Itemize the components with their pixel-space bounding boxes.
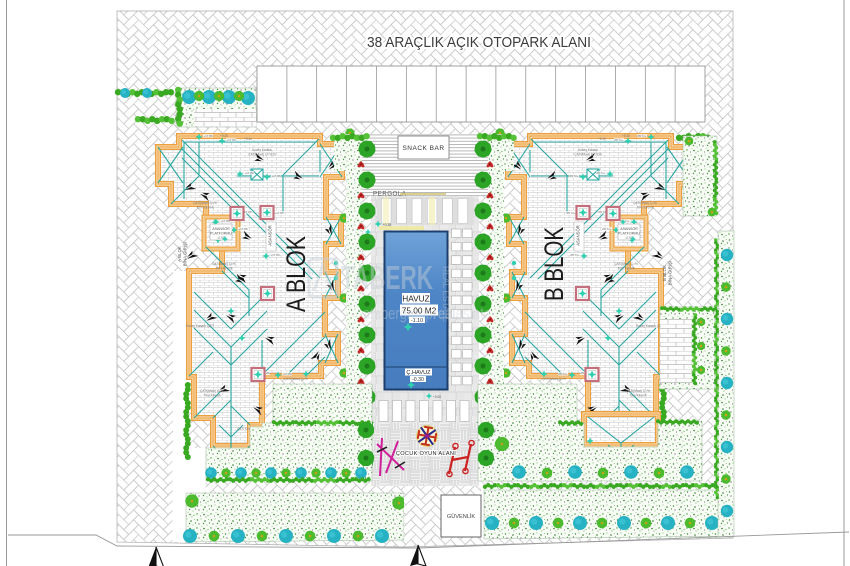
svg-text:+17.86: +17.86 [602,227,612,231]
svg-text:+0.35: +0.35 [383,223,392,227]
svg-text:+17.86: +17.86 [274,211,284,215]
svg-text:BİNA GİRİŞİ: BİNA GİRİŞİ [183,242,188,266]
svg-text:ÇATI(Mavi) Ç=%: ÇATI(Mavi) Ç=% [633,201,657,205]
svg-text:+9.30: +9.30 [622,134,630,138]
svg-text:70m Kiremit: 70m Kiremit [215,267,232,271]
svg-text:ASANSÖR: ASANSÖR [620,227,638,231]
svg-text:+17.86: +17.86 [226,138,236,142]
svg-text:ÇATI(Mavi) Ç=%33: ÇATI(Mavi) Ç=%33 [574,153,602,157]
svg-text:ASANSÖR: ASANSÖR [576,225,581,245]
svg-text:ÇATI(Mavi) Ç=%: ÇATI(Mavi) Ç=% [542,377,566,381]
svg-text:+17.86: +17.86 [282,372,292,376]
svg-text:Kuzey Kanadı ÇATI: Kuzey Kanadı ÇATI [186,324,214,328]
svg-text:+17.86: +17.86 [570,253,580,257]
svg-text:ÇATI(Mavi) Ç=%: ÇATI(Mavi) Ç=% [626,389,650,393]
svg-text:ÇATI(Mavi) Ç=%: ÇATI(Mavi) Ç=% [212,262,236,266]
svg-text:B BLOK: B BLOK [662,265,667,281]
svg-text:+17.86: +17.86 [271,174,281,178]
svg-text:70m Kiremit: 70m Kiremit [617,267,634,271]
svg-text:ASANSÖR: ASANSÖR [268,225,273,245]
svg-text:atabergrouprealestate: atabergrouprealestate [363,305,491,323]
svg-text:+17.86: +17.86 [566,211,576,215]
svg-text:38 ARAÇLIK AÇIK OTOPARK ALANI: 38 ARAÇLIK AÇIK OTOPARK ALANI [367,35,591,51]
svg-text:ÇATI(Mavi) Ç=%: ÇATI(Mavi) Ç=% [193,201,217,205]
svg-text:GÜVENLİK: GÜVENLİK [447,513,476,520]
svg-text:ÇATI(Mavi) Ç=%: ÇATI(Mavi) Ç=% [200,389,224,393]
svg-text:-0.30: -0.30 [412,377,424,383]
svg-text:+17.86: +17.86 [558,372,568,376]
svg-text:+17.86: +17.86 [637,134,647,138]
svg-text:+17.86: +17.86 [220,219,230,223]
svg-text:+0.00: +0.00 [433,395,441,399]
svg-text:ÇOCUK OYUN ALANI: ÇOCUK OYUN ALANI [396,451,456,457]
svg-text:Kuzey Kanadı: Kuzey Kanadı [578,148,598,152]
svg-text:+17.86: +17.86 [244,171,254,175]
svg-text:+17.86: +17.86 [569,174,579,178]
svg-text:70m Kiremit: 70m Kiremit [636,206,653,210]
svg-text:70m Kiremit: 70m Kiremit [203,394,220,398]
svg-text:+9.30: +9.30 [244,137,252,141]
svg-text:Kuzey Kanadı: Kuzey Kanadı [252,148,272,152]
svg-text:TABERK: TABERK [341,259,433,296]
svg-text:+17.86: +17.86 [270,253,280,257]
svg-text:+17.86: +17.86 [614,138,624,142]
svg-text:ÇATI(Mavi) Ç=%: ÇATI(Mavi) Ç=% [614,262,638,266]
svg-text:SNACK BAR: SNACK BAR [402,145,444,152]
svg-text:B BLOK: B BLOK [539,227,569,301]
svg-text:+17.86: +17.86 [238,227,248,231]
svg-text:A BLOK: A BLOK [281,236,311,312]
svg-text:70m Kiremit: 70m Kiremit [629,394,646,398]
svg-text:BİNA GİRİŞİ: BİNA GİRİŞİ [668,261,673,285]
svg-text:70m Kiremit: 70m Kiremit [196,206,213,210]
svg-text:+9.30: +9.30 [220,134,228,138]
svg-text:Ç.HAVUZ: Ç.HAVUZ [406,370,431,376]
svg-text:ÇATI(Mavi) Ç=%33: ÇATI(Mavi) Ç=%33 [248,153,276,157]
svg-text:+17.86: +17.86 [203,134,213,138]
svg-text:A BLOK: A BLOK [177,246,182,262]
svg-text:ÇATI(Mavi) Ç=%: ÇATI(Mavi) Ç=% [284,377,308,381]
svg-text:ASANSÖR: ASANSÖR [212,227,230,231]
svg-text:+17.86: +17.86 [596,171,606,175]
svg-text:+9.30: +9.30 [598,137,606,141]
